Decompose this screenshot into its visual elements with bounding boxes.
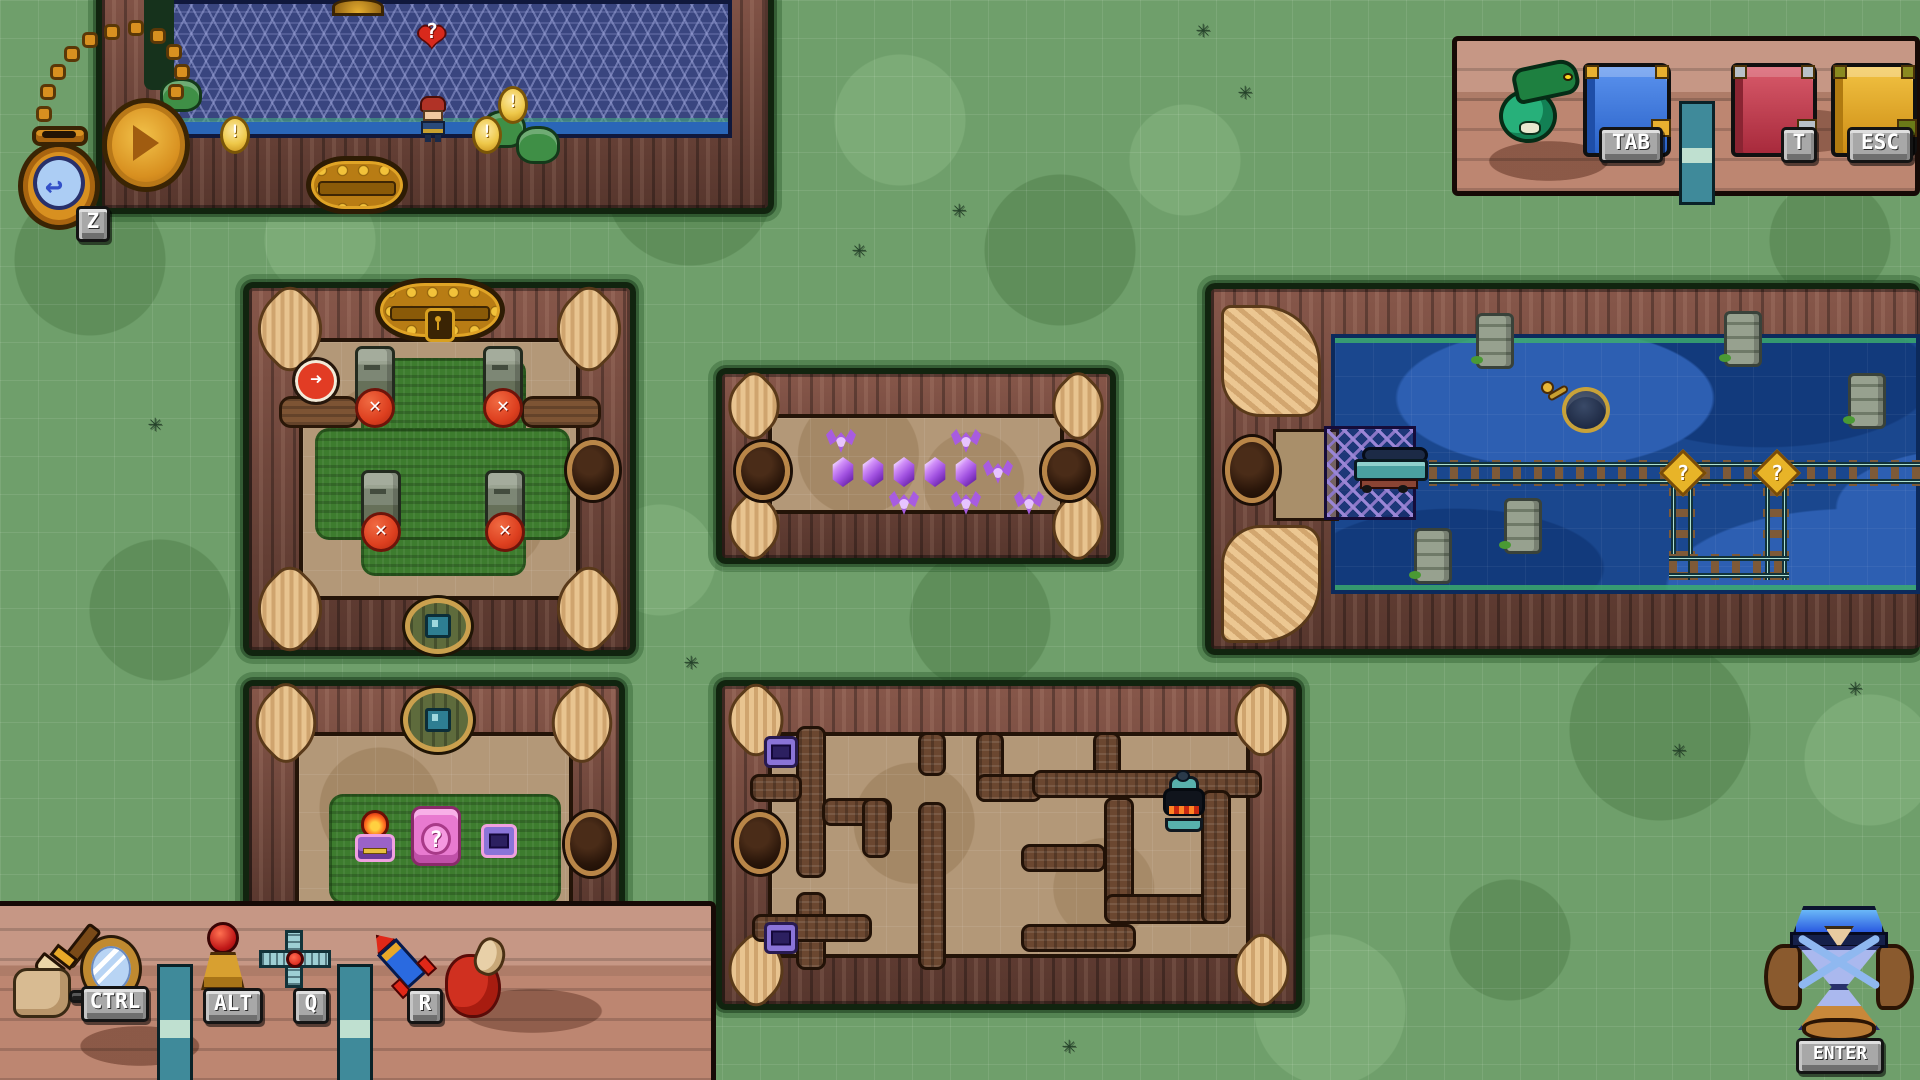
glove (13, 968, 71, 1018)
maze-room (716, 680, 1302, 1010)
sand-bank (1221, 305, 1321, 417)
book-corner (1833, 65, 1847, 79)
x-marker[interactable]: ✕ (355, 388, 395, 428)
purple-console[interactable] (481, 824, 517, 858)
scepter[interactable] (199, 922, 247, 998)
switch-hook[interactable] (259, 930, 333, 992)
log-barrier (521, 396, 601, 428)
door-icon (425, 708, 451, 732)
rewind-arrow-icon: ↩ (45, 172, 63, 202)
lake-room: ? ? (1205, 283, 1920, 655)
roast-item[interactable] (445, 938, 511, 1022)
plant-sprig (1848, 676, 1874, 698)
lamp-band (363, 848, 387, 854)
maze-wall (1021, 844, 1106, 872)
book-corner (1901, 65, 1915, 79)
furnace-robot[interactable] (1163, 782, 1205, 834)
ctrl-key[interactable]: CTRL (81, 986, 149, 1022)
plant-sprig (1238, 80, 1264, 102)
chain-link (174, 64, 190, 80)
chain-link (150, 28, 166, 44)
rail-track (1669, 554, 1789, 580)
heart-question: ? (426, 11, 438, 51)
stone-pillar (1848, 373, 1886, 429)
maze-hole[interactable] (734, 812, 786, 874)
scepter-base (201, 952, 245, 990)
bush (516, 126, 560, 164)
x-marker[interactable]: ✕ (361, 512, 401, 552)
turret-room: ➜ ✕ ✕ ✕ ✕ (243, 282, 636, 656)
purple-console[interactable] (764, 736, 798, 768)
minecart-body (1354, 459, 1428, 481)
player-character[interactable] (420, 96, 446, 142)
crank-knob[interactable] (1541, 381, 1554, 394)
maze-wall (1021, 924, 1136, 952)
plant-sprig (852, 238, 878, 260)
robot-mouth (1169, 806, 1199, 814)
stone-pillar (1504, 498, 1542, 554)
book-corner (1733, 65, 1747, 79)
tall-grass (315, 428, 570, 540)
one-way-sign: ➜ (295, 360, 337, 402)
gem-room (716, 368, 1116, 564)
plant-sprig (1672, 738, 1698, 760)
item-room: ? (243, 680, 625, 926)
maze-wall (918, 732, 946, 776)
purple-console[interactable] (764, 922, 798, 954)
maze-wall (750, 774, 802, 802)
esc-key[interactable]: ESC (1847, 127, 1913, 163)
book-corner (1801, 65, 1815, 79)
player-face (423, 110, 443, 121)
exclamation-coin[interactable]: ! (472, 116, 502, 154)
cave-hole[interactable] (567, 440, 619, 500)
gate-bar (318, 181, 395, 196)
pond-gate[interactable] (306, 156, 408, 214)
book-corner (1585, 65, 1599, 79)
chain-link (168, 84, 184, 100)
stone-pillar (1414, 528, 1452, 584)
trunk-hole[interactable] (1225, 437, 1279, 503)
maze-wall (862, 798, 890, 858)
player-leg (425, 135, 431, 142)
scepter-orb (207, 922, 239, 954)
shelf-strap (1679, 101, 1715, 205)
door-icon (425, 614, 451, 638)
watch-slot (42, 131, 76, 138)
bottom-shelf: CTRL ALT Q R (0, 901, 716, 1080)
hourglass-wing (1876, 944, 1914, 1010)
deep-water (166, 0, 732, 138)
gate-lock (425, 308, 455, 342)
lamp-item[interactable] (355, 810, 395, 864)
game-world: ❤? ! ! ! ➜ ✕ ✕ ✕ ✕ (0, 0, 1920, 1080)
chain-link (82, 32, 98, 48)
locked-gate[interactable] (375, 278, 505, 342)
stone-pillar (1476, 313, 1514, 369)
enter-key[interactable]: ENTER (1796, 1038, 1884, 1074)
rewind-watch[interactable]: ↩ Z (8, 14, 238, 250)
sand-bank (1221, 525, 1321, 643)
chest-question: ? (421, 823, 451, 855)
shelf-strap (157, 964, 193, 1080)
medallion-arrow-icon (133, 125, 159, 161)
player-leg (435, 135, 441, 142)
hook-gem (286, 950, 304, 968)
plant-sprig (148, 412, 174, 434)
chain-link (128, 20, 144, 36)
chain-link (64, 46, 80, 62)
cave-hole[interactable] (565, 812, 617, 876)
dragon-head (1510, 57, 1582, 106)
arrow-right-icon: ➜ (310, 367, 322, 391)
z-key[interactable]: Z (76, 206, 110, 242)
heart-icon[interactable]: ❤? (418, 14, 446, 54)
mystery-chest[interactable]: ? (411, 806, 461, 866)
q-key[interactable]: Q (293, 988, 329, 1024)
minecart-wheel (1398, 485, 1408, 493)
chain-link (40, 84, 56, 100)
exclamation-coin[interactable]: ! (498, 86, 528, 124)
maze-wall (1201, 790, 1231, 924)
round-door[interactable] (405, 598, 471, 654)
tab-key[interactable]: TAB (1599, 127, 1663, 163)
chain-link (104, 24, 120, 40)
tunnel-hole[interactable] (1042, 442, 1096, 500)
x-marker[interactable]: ✕ (485, 512, 525, 552)
x-marker[interactable]: ✕ (483, 388, 523, 428)
gold-object (332, 0, 384, 16)
tunnel-hole[interactable] (736, 442, 790, 500)
player-body (421, 121, 445, 135)
maze-wall (796, 726, 826, 878)
dragon-figure[interactable] (1493, 61, 1583, 145)
turtle[interactable] (1562, 387, 1610, 433)
r-key[interactable]: R (407, 988, 443, 1024)
stone-pillar (1724, 311, 1762, 367)
round-door[interactable] (403, 688, 473, 752)
alt-key[interactable]: ALT (203, 988, 263, 1024)
plant-sprig (952, 198, 978, 220)
t-key[interactable]: T (1781, 127, 1817, 163)
robot-base (1165, 818, 1203, 832)
dragon-eye (1563, 73, 1573, 81)
chain-link (50, 64, 66, 80)
maze-wall (918, 802, 946, 970)
hourglass-wing (1764, 944, 1802, 1010)
shelf-strap (337, 964, 373, 1080)
hourglass[interactable]: ENTER (1762, 900, 1918, 1080)
dragon-belly (1519, 121, 1541, 135)
plant-sprig (1062, 1034, 1088, 1056)
medallion (102, 98, 190, 192)
robot-vent (1176, 770, 1190, 782)
minecart[interactable] (1354, 447, 1434, 491)
book-corner (1655, 65, 1669, 79)
plant-sprig (684, 650, 710, 672)
minecart-wheel (1362, 485, 1372, 493)
top-shelf: TAB T ESC (1452, 36, 1920, 196)
chain-link (166, 44, 182, 60)
plant-sprig (1196, 18, 1222, 40)
watch-face: ↩ (33, 156, 85, 210)
chain-link (36, 106, 52, 122)
